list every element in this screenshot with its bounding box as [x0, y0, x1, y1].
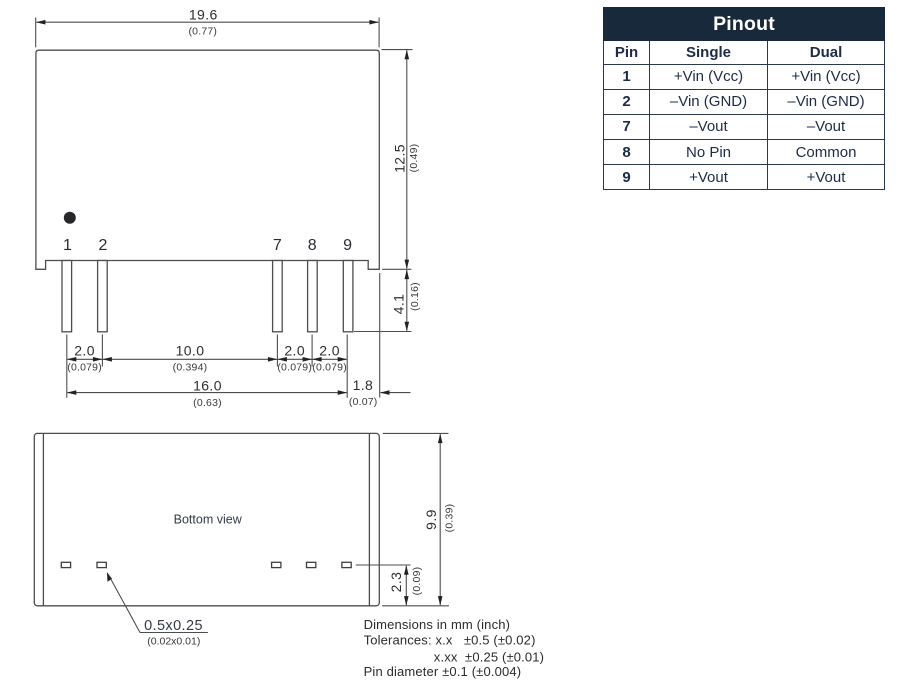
svg-text:Tolerances: x.x ±0.5 (±0.02): Tolerances: x.x ±0.5 (±0.02)	[364, 633, 536, 648]
svg-text:2: 2	[99, 237, 108, 254]
svg-text:(0.63): (0.63)	[193, 397, 222, 409]
svg-text:2.3: 2.3	[388, 572, 404, 593]
svg-text:9.9: 9.9	[423, 509, 439, 530]
svg-text:0.5x0.25: 0.5x0.25	[144, 618, 203, 634]
svg-text:1: 1	[63, 237, 72, 254]
svg-text:4.1: 4.1	[390, 294, 406, 315]
svg-text:x.xx ±0.25 (±0.01): x.xx ±0.25 (±0.01)	[434, 649, 544, 664]
svg-text:2.0: 2.0	[319, 343, 340, 359]
svg-text:(0.16): (0.16)	[409, 282, 421, 311]
svg-text:7: 7	[273, 237, 282, 254]
svg-text:(0.394): (0.394)	[173, 361, 208, 373]
svg-text:(0.07): (0.07)	[349, 396, 378, 408]
svg-text:(0.02x0.01): (0.02x0.01)	[147, 635, 200, 647]
svg-text:2.0: 2.0	[74, 343, 95, 359]
svg-text:12.5: 12.5	[391, 144, 407, 173]
svg-text:Bottom view: Bottom view	[174, 512, 243, 526]
svg-text:2.0: 2.0	[284, 343, 305, 359]
svg-text:10.0: 10.0	[176, 343, 205, 359]
svg-text:Dimensions in mm (inch): Dimensions in mm (inch)	[364, 617, 510, 632]
svg-text:(0.77): (0.77)	[188, 26, 217, 38]
svg-text:(0.079): (0.079)	[67, 361, 102, 373]
svg-text:Pin diameter ±0.1 (±0.004): Pin diameter ±0.1 (±0.004)	[364, 664, 522, 679]
svg-text:(0.49): (0.49)	[408, 144, 420, 173]
svg-text:9: 9	[343, 237, 352, 254]
svg-text:19.6: 19.6	[189, 6, 218, 22]
svg-text:(0.079): (0.079)	[312, 361, 347, 373]
svg-text:16.0: 16.0	[193, 377, 222, 393]
svg-text:(0.079): (0.079)	[277, 361, 312, 373]
svg-text:(0.39): (0.39)	[443, 504, 455, 533]
svg-text:(0.09): (0.09)	[411, 567, 423, 596]
svg-text:1.8: 1.8	[353, 377, 374, 393]
svg-text:8: 8	[308, 237, 317, 254]
